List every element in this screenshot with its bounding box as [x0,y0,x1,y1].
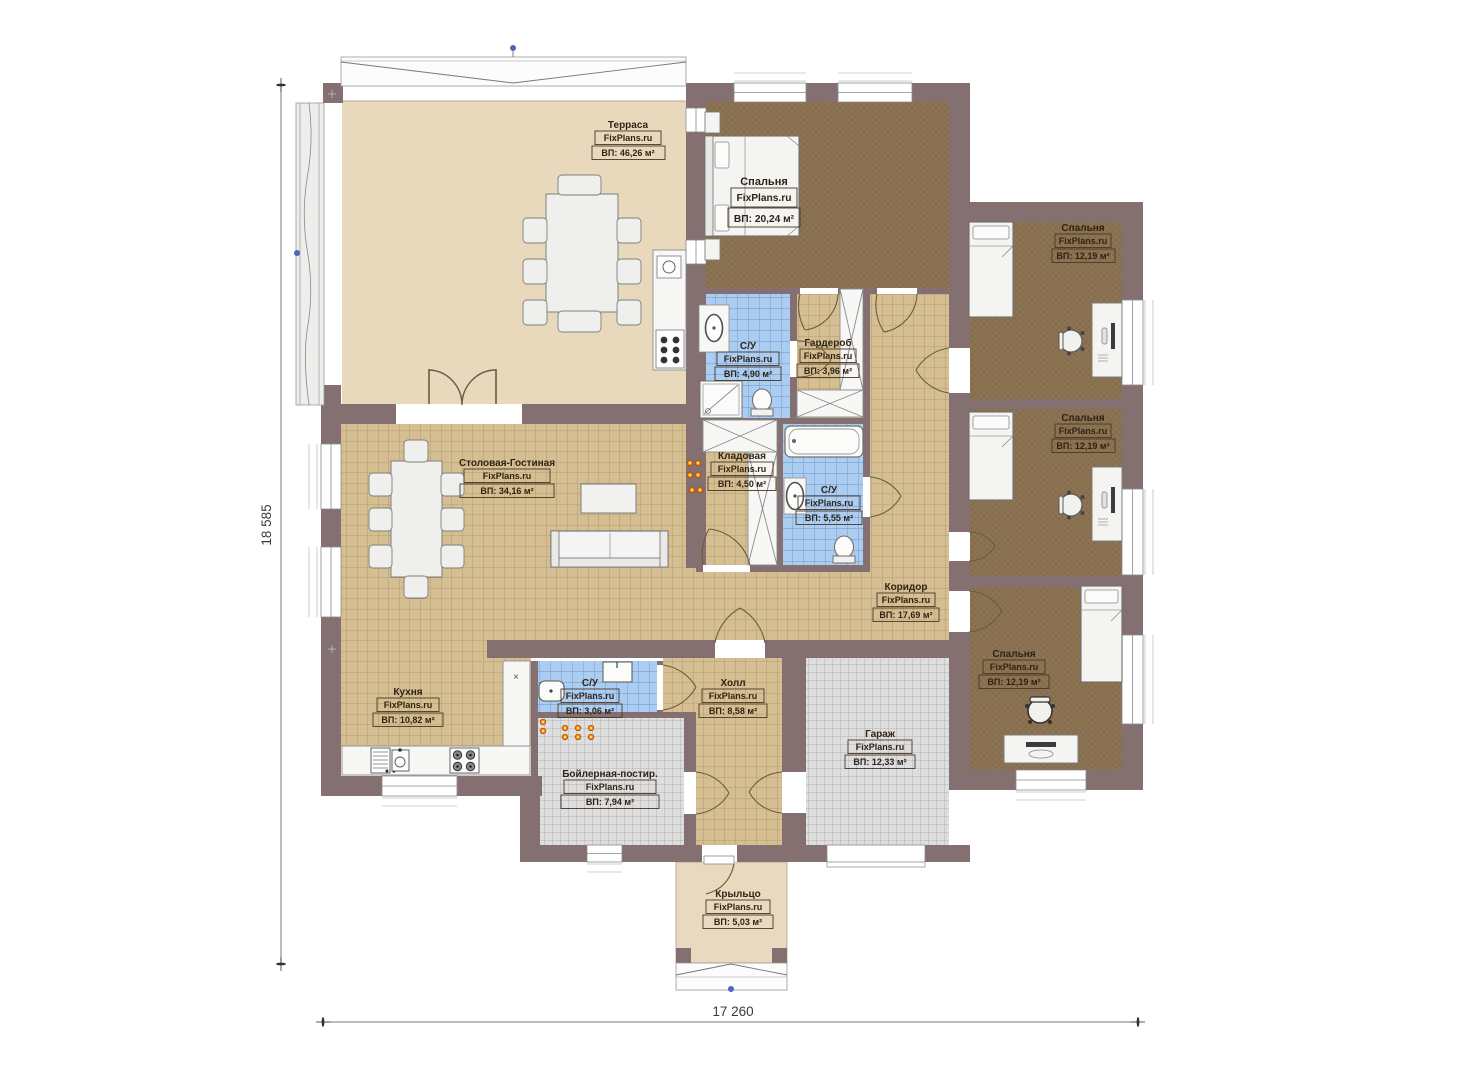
svg-text:17 260: 17 260 [712,1004,753,1019]
svg-text:FixPlans.ru: FixPlans.ru [604,133,653,143]
svg-text:FixPlans.ru: FixPlans.ru [483,471,532,481]
svg-text:ВП: 20,24 м²: ВП: 20,24 м² [734,214,795,225]
svg-text:ВП: 7,94 м²: ВП: 7,94 м² [586,797,634,807]
svg-text:Коридор: Коридор [884,582,927,593]
svg-text:FixPlans.ru: FixPlans.ru [586,782,635,792]
svg-text:Спальня: Спальня [1061,413,1104,424]
svg-text:ВП: 3,06 м²: ВП: 3,06 м² [566,706,614,716]
svg-text:ВП: 12,19 м²: ВП: 12,19 м² [1056,251,1109,261]
svg-text:FixPlans.ru: FixPlans.ru [709,691,758,701]
svg-text:FixPlans.ru: FixPlans.ru [384,700,433,710]
svg-text:Холл: Холл [720,678,745,689]
svg-text:Спальня: Спальня [740,176,788,188]
svg-text:FixPlans.ru: FixPlans.ru [714,902,763,912]
svg-text:FixPlans.ru: FixPlans.ru [1059,426,1108,436]
svg-text:FixPlans.ru: FixPlans.ru [882,595,931,605]
svg-text:Кухня: Кухня [393,687,422,698]
svg-text:FixPlans.ru: FixPlans.ru [856,742,905,752]
svg-text:ВП: 4,90 м²: ВП: 4,90 м² [724,369,772,379]
svg-text:FixPlans.ru: FixPlans.ru [724,354,773,364]
svg-text:×: × [513,672,519,683]
svg-text:Столовая-Гостиная: Столовая-Гостиная [459,458,555,469]
svg-text:FixPlans.ru: FixPlans.ru [718,464,767,474]
svg-text:18 585: 18 585 [259,504,274,545]
svg-text:Спальня: Спальня [992,649,1035,660]
svg-text:Крыльцо: Крыльцо [715,889,761,900]
svg-text:ВП: 12,19 м²: ВП: 12,19 м² [987,677,1040,687]
svg-text:ВП: 12,19 м²: ВП: 12,19 м² [1056,441,1109,451]
svg-text:ВП: 5,03 м²: ВП: 5,03 м² [714,917,762,927]
svg-text:Гараж: Гараж [865,729,896,740]
svg-text:Терраса: Терраса [608,120,649,131]
svg-text:ВП: 17,69 м²: ВП: 17,69 м² [879,610,932,620]
svg-text:FixPlans.ru: FixPlans.ru [805,498,854,508]
svg-text:Кладовая: Кладовая [718,451,766,462]
svg-text:ВП: 5,55 м²: ВП: 5,55 м² [805,513,853,523]
svg-text:FixPlans.ru: FixPlans.ru [990,662,1039,672]
svg-text:С/У: С/У [582,678,599,689]
svg-text:Бойлерная-постир.: Бойлерная-постир. [562,769,658,780]
svg-text:ВП: 34,16 м²: ВП: 34,16 м² [480,486,533,496]
svg-text:С/У: С/У [740,341,757,352]
svg-text:ВП: 10,82 м²: ВП: 10,82 м² [381,715,434,725]
svg-text:FixPlans.ru: FixPlans.ru [566,691,615,701]
svg-text:ВП: 4,50 м²: ВП: 4,50 м² [718,479,766,489]
svg-text:FixPlans.ru: FixPlans.ru [1059,236,1108,246]
svg-text:ВП: 46,26 м²: ВП: 46,26 м² [601,148,654,158]
svg-text:Спальня: Спальня [1061,223,1104,234]
svg-text:С/У: С/У [821,485,838,496]
svg-text:ВП: 8,58 м²: ВП: 8,58 м² [709,706,757,716]
svg-text:ВП: 12,33 м²: ВП: 12,33 м² [853,757,906,767]
svg-text:FixPlans.ru: FixPlans.ru [737,193,792,204]
